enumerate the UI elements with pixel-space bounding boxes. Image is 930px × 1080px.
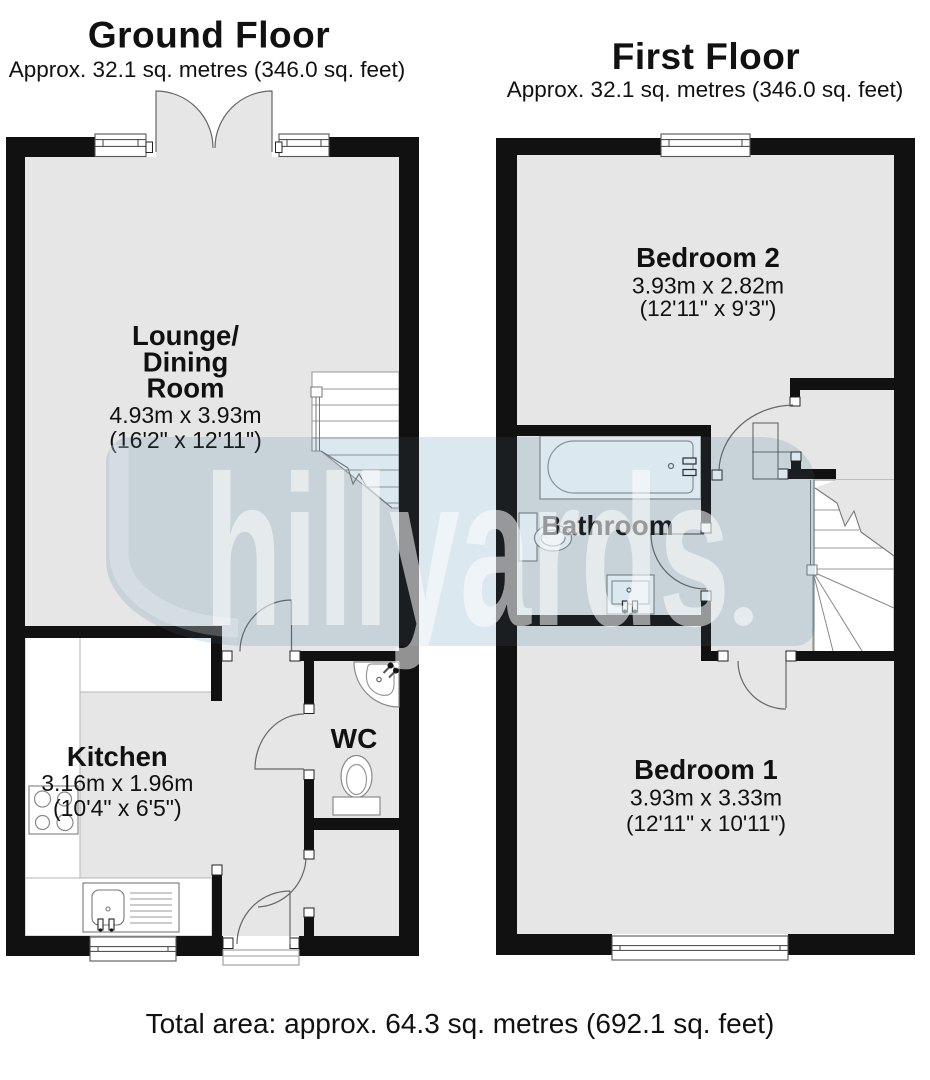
svg-text:(12'11" x 9'3"): (12'11" x 9'3") — [640, 296, 777, 321]
svg-text:WC: WC — [331, 723, 378, 754]
svg-text:Bedroom 2: Bedroom 2 — [636, 242, 780, 273]
svg-text:Total area: approx. 64.3 sq. m: Total area: approx. 64.3 sq. metres (692… — [146, 1008, 775, 1039]
svg-text:Bedroom 1: Bedroom 1 — [634, 754, 778, 785]
svg-text:3.16m x 1.96m: 3.16m x 1.96m — [41, 770, 193, 796]
svg-text:Kitchen: Kitchen — [67, 741, 168, 772]
svg-text:(10'4" x 6'5"): (10'4" x 6'5") — [53, 795, 182, 821]
svg-text:(12'11" x 10'11"): (12'11" x 10'11") — [626, 811, 786, 836]
svg-text:4.93m x 3.93m: 4.93m x 3.93m — [109, 402, 261, 428]
svg-text:Approx. 32.1 sq. metres (346.0: Approx. 32.1 sq. metres (346.0 sq. feet) — [507, 77, 903, 102]
svg-text:hillyards: hillyards — [204, 432, 730, 671]
svg-text:Approx. 32.1 sq. metres (346.0: Approx. 32.1 sq. metres (346.0 sq. feet) — [9, 57, 405, 82]
svg-text:Ground Floor: Ground Floor — [88, 15, 330, 56]
svg-text:3.93m x 3.33m: 3.93m x 3.33m — [630, 785, 782, 811]
svg-text:Room: Room — [147, 373, 225, 404]
svg-text:First Floor: First Floor — [612, 36, 800, 77]
svg-text:3.93m x 2.82m: 3.93m x 2.82m — [632, 273, 784, 299]
